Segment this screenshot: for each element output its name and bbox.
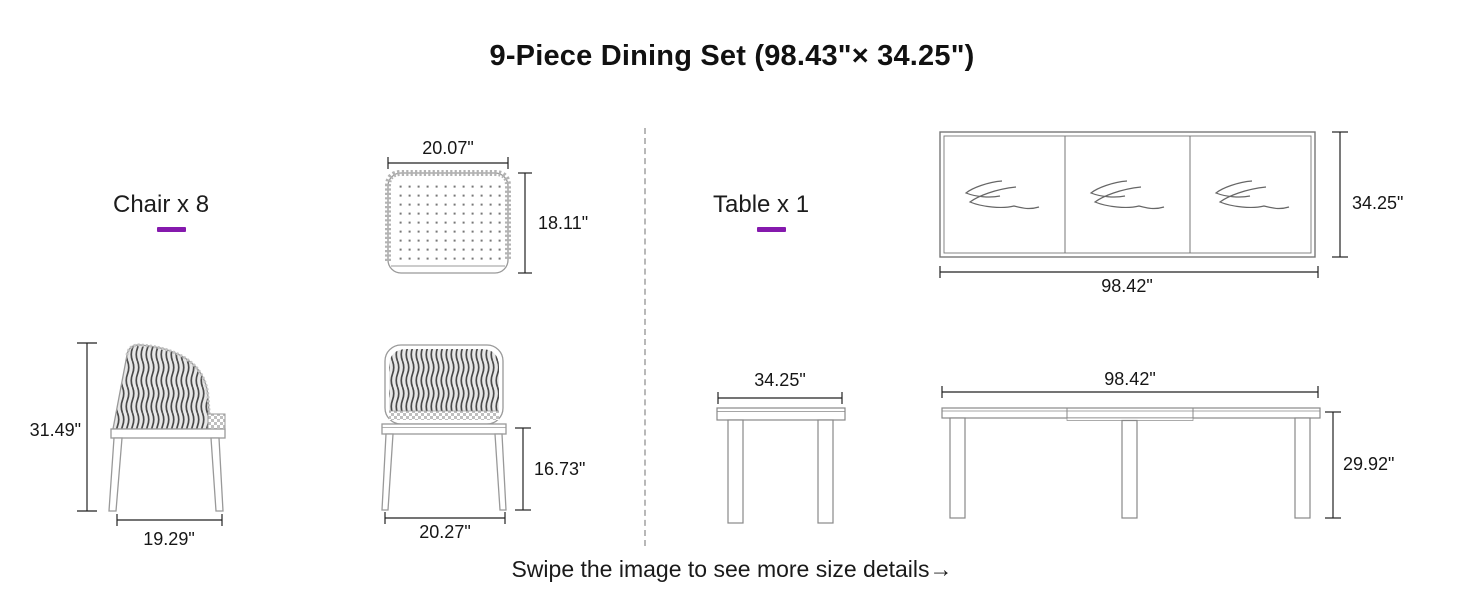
chair-side-depth-label: 19.29" (143, 529, 194, 549)
dim-table-top-width (1332, 132, 1348, 257)
table-end-width-label: 34.25" (754, 370, 805, 390)
chair-front-width-label: 20.27" (419, 522, 470, 542)
chair-side-height-label: 31.49" (30, 420, 81, 440)
table-side-view-figure: 98.42" 29.92" (930, 360, 1420, 535)
section-divider (644, 128, 646, 546)
dim-chair-top-height (518, 173, 532, 273)
table-side-height-label: 29.92" (1343, 454, 1394, 474)
chair-front-drawing (382, 345, 506, 510)
table-top-drawing (940, 132, 1315, 257)
table-top-view-figure: 34.25" 98.42" (920, 120, 1420, 305)
table-top-width-label: 34.25" (1352, 193, 1403, 213)
dim-chair-front-seat-height (515, 428, 531, 510)
chair-side-drawing (109, 345, 225, 511)
table-end-drawing (717, 408, 845, 523)
chair-seat-top-drawing (388, 173, 508, 273)
chair-top-height-label: 18.11" (538, 213, 588, 233)
table-side-length-label: 98.42" (1104, 369, 1155, 389)
chair-section-label: Chair x 8 (113, 191, 209, 219)
chair-top-view-figure: 20.07" 18.11" (360, 128, 610, 298)
dim-table-side-height (1325, 412, 1341, 518)
table-accent-underline (757, 227, 786, 232)
dim-chair-top-width (388, 157, 508, 169)
chair-top-width-label: 20.07" (422, 138, 473, 158)
dim-chair-side-depth (117, 514, 222, 526)
dimension-diagram: 9-Piece Dining Set (98.43"× 34.25") Chai… (0, 0, 1464, 600)
table-end-view-figure: 34.25" (690, 360, 875, 535)
page-title: 9-Piece Dining Set (98.43"× 34.25") (0, 40, 1464, 73)
swipe-hint-text: Swipe the image to see more size details… (0, 556, 1464, 583)
chair-accent-underline (157, 227, 186, 232)
chair-front-seat-height-label: 16.73" (534, 459, 585, 479)
table-top-length-label: 98.42" (1101, 276, 1152, 296)
table-section-label: Table x 1 (713, 191, 809, 219)
dim-table-end-width (718, 392, 842, 404)
table-side-drawing (942, 408, 1320, 518)
chair-front-view-figure: 16.73" 20.27" (355, 335, 605, 555)
chair-side-view-figure: 31.49" 19.29" (25, 335, 295, 555)
